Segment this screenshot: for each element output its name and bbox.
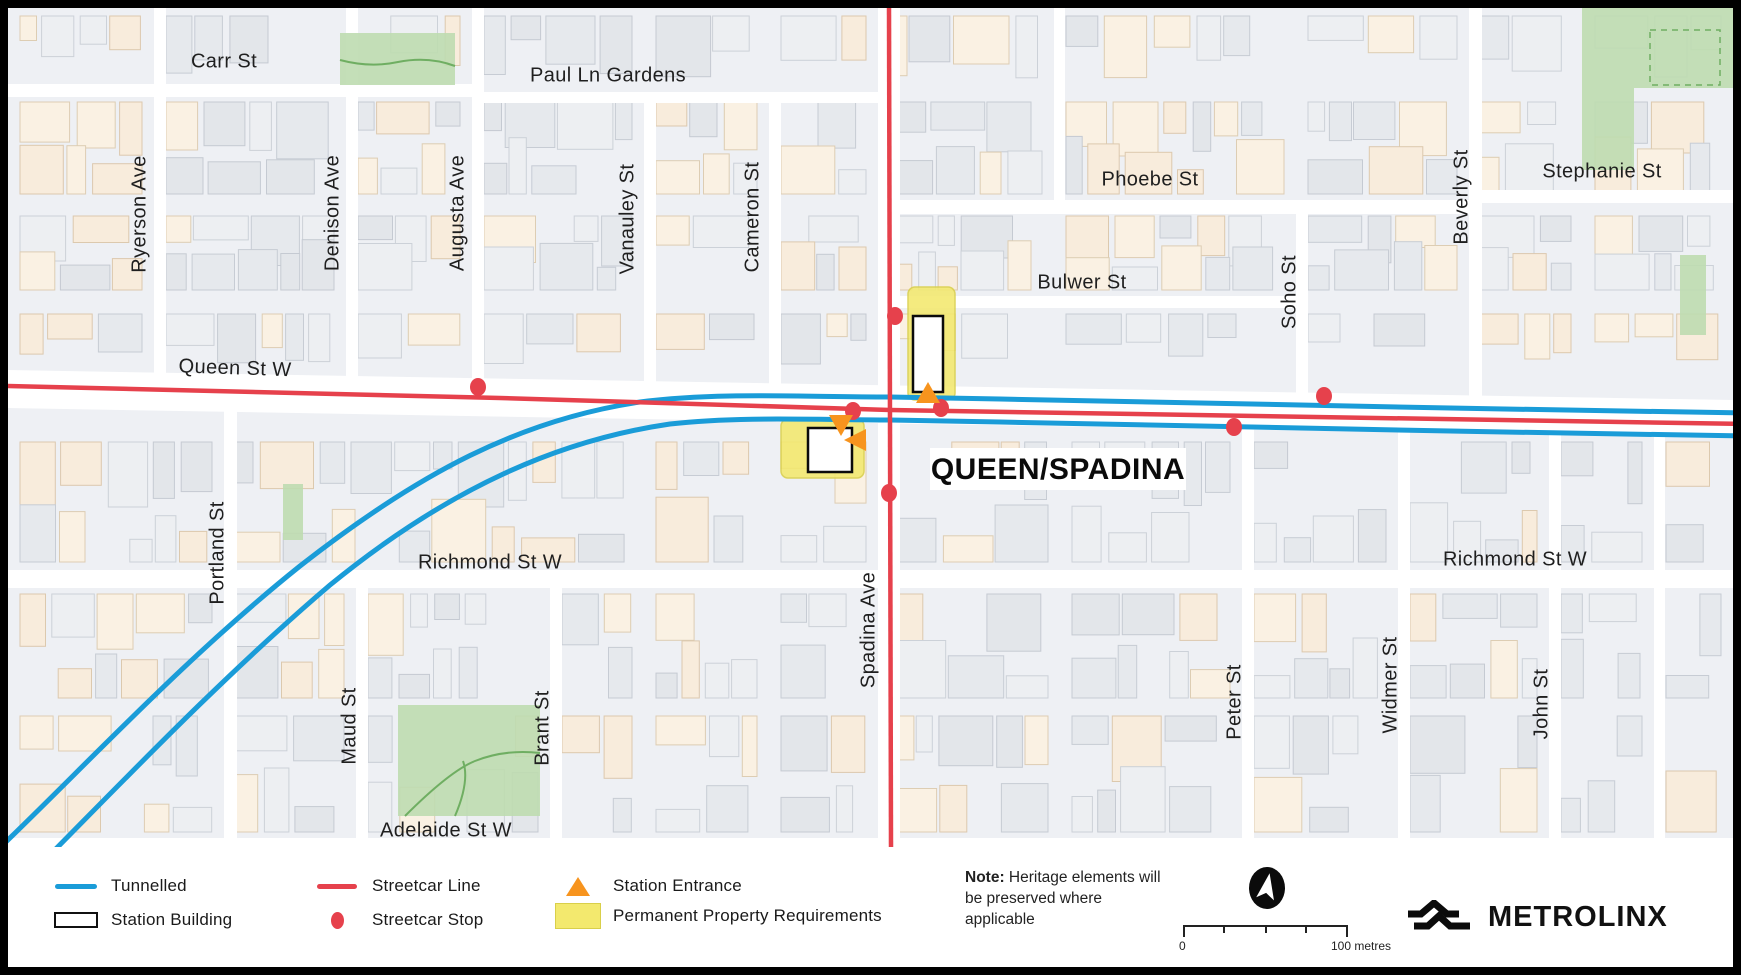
streetcar-line-icon [314,884,360,889]
property-area-icon [555,903,601,929]
street-label: Richmond St W [1443,548,1587,570]
street-label: Beverly St [1450,149,1472,244]
street-label: Peter St [1223,664,1245,739]
legend-item-station-entrance: Station Entrance [555,871,742,901]
street-label: Richmond St W [418,551,562,573]
street-label: Augusta Ave [446,155,468,271]
street-label: Brant St [531,690,553,765]
street-label: Queen St W [178,355,292,381]
street-label: John St [1530,669,1552,740]
legend-label: Streetcar Stop [372,910,483,930]
street-label: Soho St [1278,255,1300,329]
metrolinx-logo-text: METROLINX [1488,901,1668,934]
street-label: Denison Ave [321,155,343,271]
street-label: Adelaide St W [380,819,512,841]
metrolinx-logo-mark [1406,900,1478,934]
street-label: Vanauley St [616,164,638,275]
legend-label: Station Entrance [613,876,742,896]
map-canvas[interactable]: QUEEN/SPADINA Carr StPaul Ln GardensPhoe… [8,8,1733,847]
legend-item-tunnelled: Tunnelled [53,871,187,901]
legend-item-streetcar-stop: Streetcar Stop [314,905,483,935]
streetcar-line-spadina [889,8,891,847]
street-label: Phoebe St [1101,168,1198,190]
tunnelled-line-icon [53,884,99,889]
street-label: Stephanie St [1542,160,1661,182]
scale-bar: 0 100 metres [1183,925,1348,927]
street-label: Widmer St [1379,636,1401,733]
legend-bar: Tunnelled Station Building Streetcar Lin… [8,847,1733,967]
legend-item-streetcar-line: Streetcar Line [314,871,481,901]
station-entrance-icon [555,877,601,896]
street-label: Maud St [338,687,360,764]
legend-label: Permanent Property Requirements [613,906,882,926]
north-arrow-icon [1245,865,1289,916]
metrolinx-logo: METROLINX [1406,897,1668,937]
street-label: Spadina Ave [857,572,879,688]
street-label: Portland St [206,501,228,604]
figure-inner: QUEEN/SPADINA Carr StPaul Ln GardensPhoe… [8,8,1733,967]
station-name-label: QUEEN/SPADINA [931,453,1185,486]
map-svg: QUEEN/SPADINA Carr StPaul Ln GardensPhoe… [8,8,1733,847]
street-label: Paul Ln Gardens [530,64,686,86]
street-label: Bulwer St [1037,271,1126,293]
legend-label: Station Building [111,910,232,930]
scale-end-label: 100 metres [1331,939,1391,953]
scale-start-label: 0 [1179,939,1186,953]
street-label: Cameron St [741,162,763,273]
note-bold: Note: [965,869,1005,886]
streetcar-stop-icon [314,912,360,929]
legend-label: Streetcar Line [372,876,481,896]
street-label: Ryerson Ave [128,155,150,272]
legend-item-station-building: Station Building [53,905,232,935]
map-figure: QUEEN/SPADINA Carr StPaul Ln GardensPhoe… [0,0,1741,975]
street-label: Carr St [191,50,257,72]
legend-item-property: Permanent Property Requirements [555,901,882,931]
station-building-icon [53,912,99,928]
heritage-note: Note: Heritage elements will be preserve… [965,867,1175,930]
legend-label: Tunnelled [111,876,187,896]
